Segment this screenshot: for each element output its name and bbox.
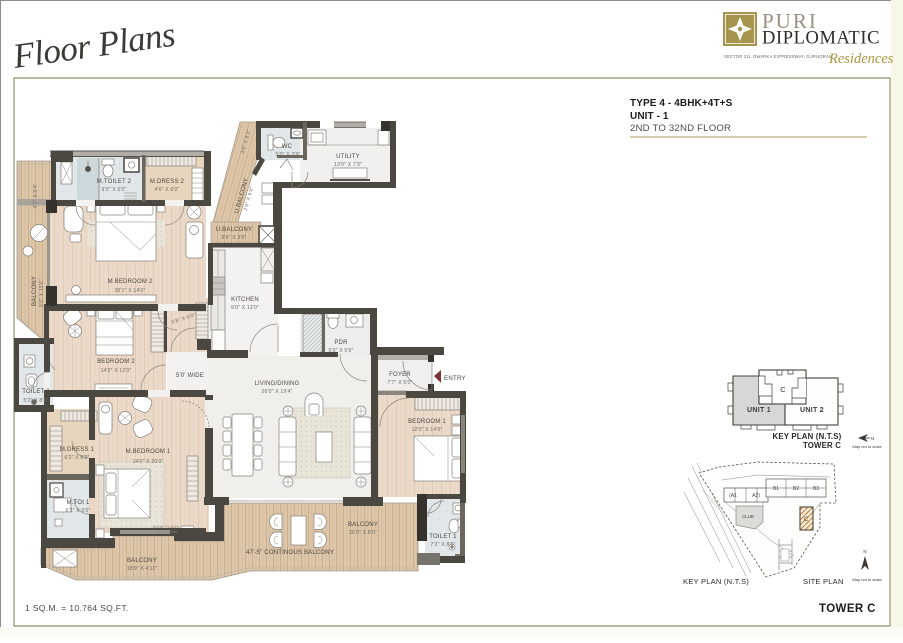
svg-text:PDR: PDR bbox=[334, 340, 348, 346]
svg-text:12'0" X 14'0": 12'0" X 14'0" bbox=[412, 427, 443, 433]
svg-text:M.BEDROOM 2: M.BEDROOM 2 bbox=[108, 279, 153, 285]
svg-text:20'1" X 14'0": 20'1" X 14'0" bbox=[115, 288, 146, 294]
svg-text:C: C bbox=[780, 385, 786, 394]
svg-text:M.DRESS 2: M.DRESS 2 bbox=[150, 179, 185, 185]
svg-text:B3: B3 bbox=[813, 486, 819, 492]
svg-text:5'6" X 19'6": 5'6" X 19'6" bbox=[39, 279, 45, 307]
svg-text:2ND TO 32ND FLOOR: 2ND TO 32ND FLOOR bbox=[630, 123, 731, 134]
svg-text:KEY PLAN (N.T.S): KEY PLAN (N.T.S) bbox=[773, 432, 842, 441]
svg-text:M.DRESS 1: M.DRESS 1 bbox=[60, 447, 95, 453]
svg-text:UNIT - 1: UNIT - 1 bbox=[630, 111, 669, 122]
svg-text:4'6" X 6'0": 4'6" X 6'0" bbox=[155, 187, 180, 193]
svg-text:26'0" X 19'4": 26'0" X 19'4" bbox=[262, 389, 293, 395]
svg-text:18'9" X 4'11": 18'9" X 4'11" bbox=[127, 566, 158, 572]
svg-text:U.BALCONY: U.BALCONY bbox=[216, 227, 252, 233]
svg-text:Map not to scale: Map not to scale bbox=[852, 577, 882, 582]
svg-text:TOILET 2: TOILET 2 bbox=[22, 389, 50, 395]
svg-text:4'7" X 5'4": 4'7" X 5'4" bbox=[33, 184, 39, 209]
svg-text:UNIT 2: UNIT 2 bbox=[800, 407, 824, 414]
svg-text:UTILITY: UTILITY bbox=[336, 154, 360, 160]
svg-text:14'0" X 12'0": 14'0" X 12'0" bbox=[101, 368, 132, 374]
svg-text:M.TOILET 2: M.TOILET 2 bbox=[97, 179, 132, 185]
svg-text:47'-5" CONTINOUS BALCONY: 47'-5" CONTINOUS BALCONY bbox=[246, 550, 334, 556]
svg-text:TOILET 1: TOILET 1 bbox=[429, 534, 457, 540]
svg-text:ENTRY: ENTRY bbox=[444, 375, 466, 382]
svg-text:9'0" X 13'0": 9'0" X 13'0" bbox=[231, 305, 259, 311]
svg-text:KITCHEN: KITCHEN bbox=[231, 297, 259, 303]
svg-text:9'0" X 6'0": 9'0" X 6'0" bbox=[102, 187, 127, 193]
svg-text:N: N bbox=[871, 436, 874, 441]
svg-text:6'2" X 9'0": 6'2" X 9'0" bbox=[66, 508, 91, 514]
svg-text:5'2" X 8'6": 5'2" X 8'6" bbox=[24, 398, 49, 404]
svg-text:LIVING/DINING: LIVING/DINING bbox=[255, 381, 300, 387]
svg-text:B2: B2 bbox=[793, 486, 799, 492]
svg-text:1 SQ.M. = 10.764 SQ.FT.: 1 SQ.M. = 10.764 SQ.FT. bbox=[25, 603, 129, 613]
svg-text:6'2" X 8'9": 6'2" X 8'9" bbox=[65, 455, 90, 461]
svg-text:(A1: (A1 bbox=[729, 493, 737, 499]
svg-text:TOWER C: TOWER C bbox=[819, 603, 876, 615]
svg-text:BALCONY: BALCONY bbox=[32, 276, 38, 306]
svg-text:B1: B1 bbox=[773, 486, 779, 492]
svg-text:C: C bbox=[804, 517, 809, 523]
svg-text:7'7" X 5'0": 7'7" X 5'0" bbox=[388, 380, 413, 386]
svg-text:Residences: Residences bbox=[828, 51, 894, 67]
svg-text:DIPLOMATIC: DIPLOMATIC bbox=[762, 29, 880, 49]
svg-text:BEDROOM 2: BEDROOM 2 bbox=[97, 359, 135, 365]
svg-text:BEDROOM 1: BEDROOM 1 bbox=[408, 419, 446, 425]
svg-text:M.TOI 1: M.TOI 1 bbox=[67, 500, 90, 506]
svg-text:BALCONY: BALCONY bbox=[127, 558, 157, 564]
svg-text:5'0' WIDE: 5'0' WIDE bbox=[176, 373, 204, 379]
svg-text:TYPE 4 - 4BHK+4T+S: TYPE 4 - 4BHK+4T+S bbox=[630, 98, 733, 109]
svg-text:SECTOR 111, DWARKA EXPRESSWAY,: SECTOR 111, DWARKA EXPRESSWAY, GURUGRAM bbox=[724, 54, 833, 59]
svg-text:UNIT 1: UNIT 1 bbox=[747, 407, 771, 414]
svg-text:WC: WC bbox=[282, 144, 293, 150]
svg-text:9'6" X 3'0": 9'6" X 3'0" bbox=[222, 235, 247, 241]
svg-text:6'0" X 5'6": 6'0" X 5'6" bbox=[329, 348, 354, 354]
svg-text:BEDROOM: BEDROOM bbox=[155, 529, 177, 534]
svg-text:26'0" X 8'0": 26'0" X 8'0" bbox=[349, 530, 377, 536]
svg-text:TOWER C: TOWER C bbox=[803, 441, 841, 450]
svg-text:M.BEDROOM 1: M.BEDROOM 1 bbox=[126, 449, 171, 455]
svg-text:Map not to scale: Map not to scale bbox=[852, 444, 882, 449]
svg-text:5'0" X 3'9": 5'0" X 3'9" bbox=[276, 152, 301, 158]
svg-text:FOYER: FOYER bbox=[389, 372, 411, 378]
svg-text:SITE PLAN: SITE PLAN bbox=[803, 577, 844, 586]
svg-text:7'2" X 8'6": 7'2" X 8'6" bbox=[431, 542, 456, 548]
svg-text:CLUB: CLUB bbox=[742, 514, 754, 519]
svg-text:KEY PLAN (N.T.S): KEY PLAN (N.T.S) bbox=[683, 577, 749, 586]
svg-text:14'0" X 20'0": 14'0" X 20'0" bbox=[133, 459, 164, 465]
svg-text:13'0" X 7'3": 13'0" X 7'3" bbox=[334, 162, 362, 168]
svg-text:N: N bbox=[863, 549, 866, 554]
svg-text:BALCONY: BALCONY bbox=[348, 522, 378, 528]
svg-text:A2): A2) bbox=[752, 493, 760, 499]
